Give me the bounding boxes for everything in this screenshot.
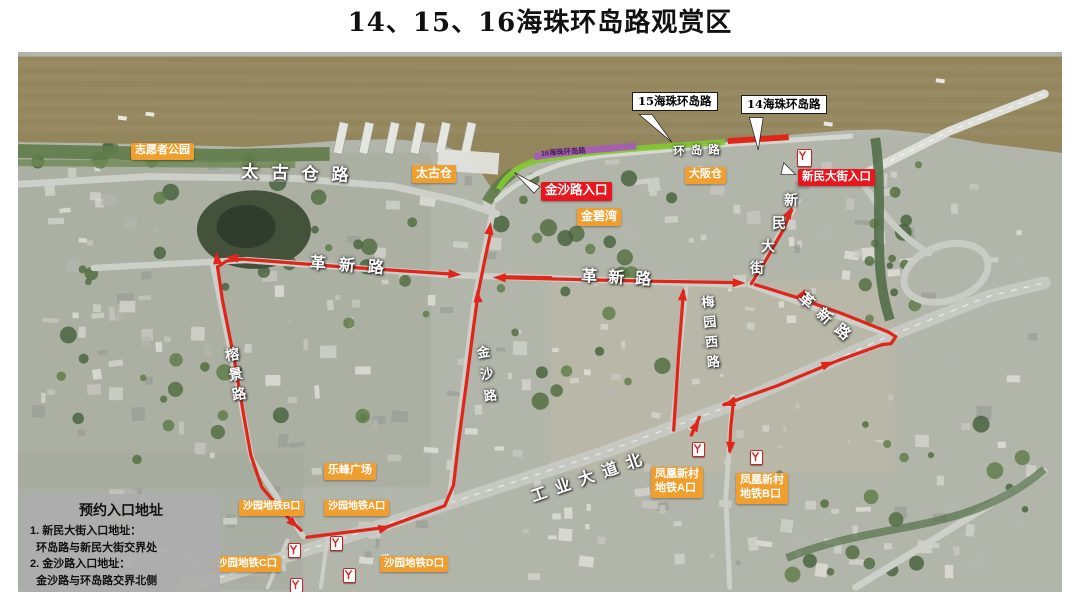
- fenghuangxincun-metro-exit-b: 凤凰新村 地铁B口: [736, 473, 788, 504]
- shayuan-metro-exit-d: 沙园地铁D口: [380, 556, 448, 572]
- metro-logo-icon: [693, 443, 702, 454]
- metro-logo-icon: [751, 451, 760, 462]
- infobox-lines: 1. 新民大街入口地址： 环岛路与新民大街交界处2. 金沙路入口地址： 金沙路与…: [30, 523, 212, 589]
- jinbiwan: 金碧湾: [577, 208, 621, 226]
- shayuan-metro-exit-b: 沙园地铁B口: [239, 500, 304, 516]
- fenghuangxincun-metro-exit-a: 凤凰新村 地铁A口: [651, 467, 703, 498]
- daban-warehouse: 大阪仓: [685, 167, 726, 184]
- metro-logo-icon: [331, 537, 340, 548]
- metro-icon-fenghuang-2: [750, 450, 763, 465]
- page-title: 14、15、16海珠环岛路观赏区: [0, 2, 1080, 39]
- taikoo-warehouse: 太古仓: [412, 165, 456, 183]
- road-xinmin-street-char-1: 民: [772, 213, 786, 233]
- infobox-line-3: 2. 金沙路入口地址：: [30, 556, 212, 573]
- satellite-map: 16海珠环岛路 志愿者公园太古仓大阪仓金碧湾乐峰广场沙园地铁B口沙园地铁A口沙园…: [18, 52, 1062, 592]
- infobox-line-2: 环岛路与新民大街交界处: [30, 540, 212, 557]
- road-xinmin-street-char-3: 街: [750, 258, 764, 278]
- xinmin-street-entrance: 新民大街入口: [798, 169, 875, 186]
- road-gexin-mid: 革新路: [581, 262, 663, 290]
- callout-15-haizhu-huandao-road: 15海珠环岛路: [632, 92, 718, 111]
- jinsha-road-entrance: 金沙路入口: [541, 182, 612, 201]
- metro-icon-shayuan-1: [288, 543, 301, 558]
- lefeng-plaza: 乐峰广场: [324, 463, 376, 480]
- metro-logo-icon: [344, 569, 353, 580]
- metro-logo-icon: [798, 150, 807, 161]
- volunteer-park: 志愿者公园: [131, 143, 194, 160]
- metro-icon-xinmin: [797, 149, 812, 167]
- shayuan-metro-exit-c: 沙园地铁C口: [213, 556, 281, 572]
- callout-14-haizhu-huandao-road: 14海珠环岛路: [741, 95, 827, 114]
- metro-icon-shayuan-4: [290, 578, 303, 592]
- screenshot-root: 14、15、16海珠环岛路观赏区 16海珠环岛路 志愿者公园太古仓大阪仓金碧湾乐…: [0, 0, 1080, 604]
- infobox-line-4: 金沙路与环岛路交界北侧: [30, 573, 212, 590]
- metro-icon-shayuan-3: [343, 568, 356, 583]
- road-xinmin-street-char-2: 大: [761, 236, 775, 256]
- shayuan-metro-exit-a: 沙园地铁A口: [324, 500, 389, 516]
- metro-icon-shayuan-2: [330, 536, 343, 551]
- road-taigucang: 太古仓路: [241, 157, 362, 186]
- entrance-address-infobox: 预约入口地址 1. 新民大街入口地址： 环岛路与新民大街交界处2. 金沙路入口地…: [22, 494, 220, 592]
- road-huandao: 环岛路: [673, 141, 726, 159]
- metro-logo-icon: [289, 544, 298, 555]
- metro-icon-fenghuang-1: [692, 442, 705, 457]
- infobox-title: 预约入口地址: [30, 500, 212, 520]
- road-xinmin-street-char-0: 新: [784, 190, 798, 210]
- infobox-line-1: 1. 新民大街入口地址：: [30, 523, 212, 540]
- metro-logo-icon: [291, 579, 300, 590]
